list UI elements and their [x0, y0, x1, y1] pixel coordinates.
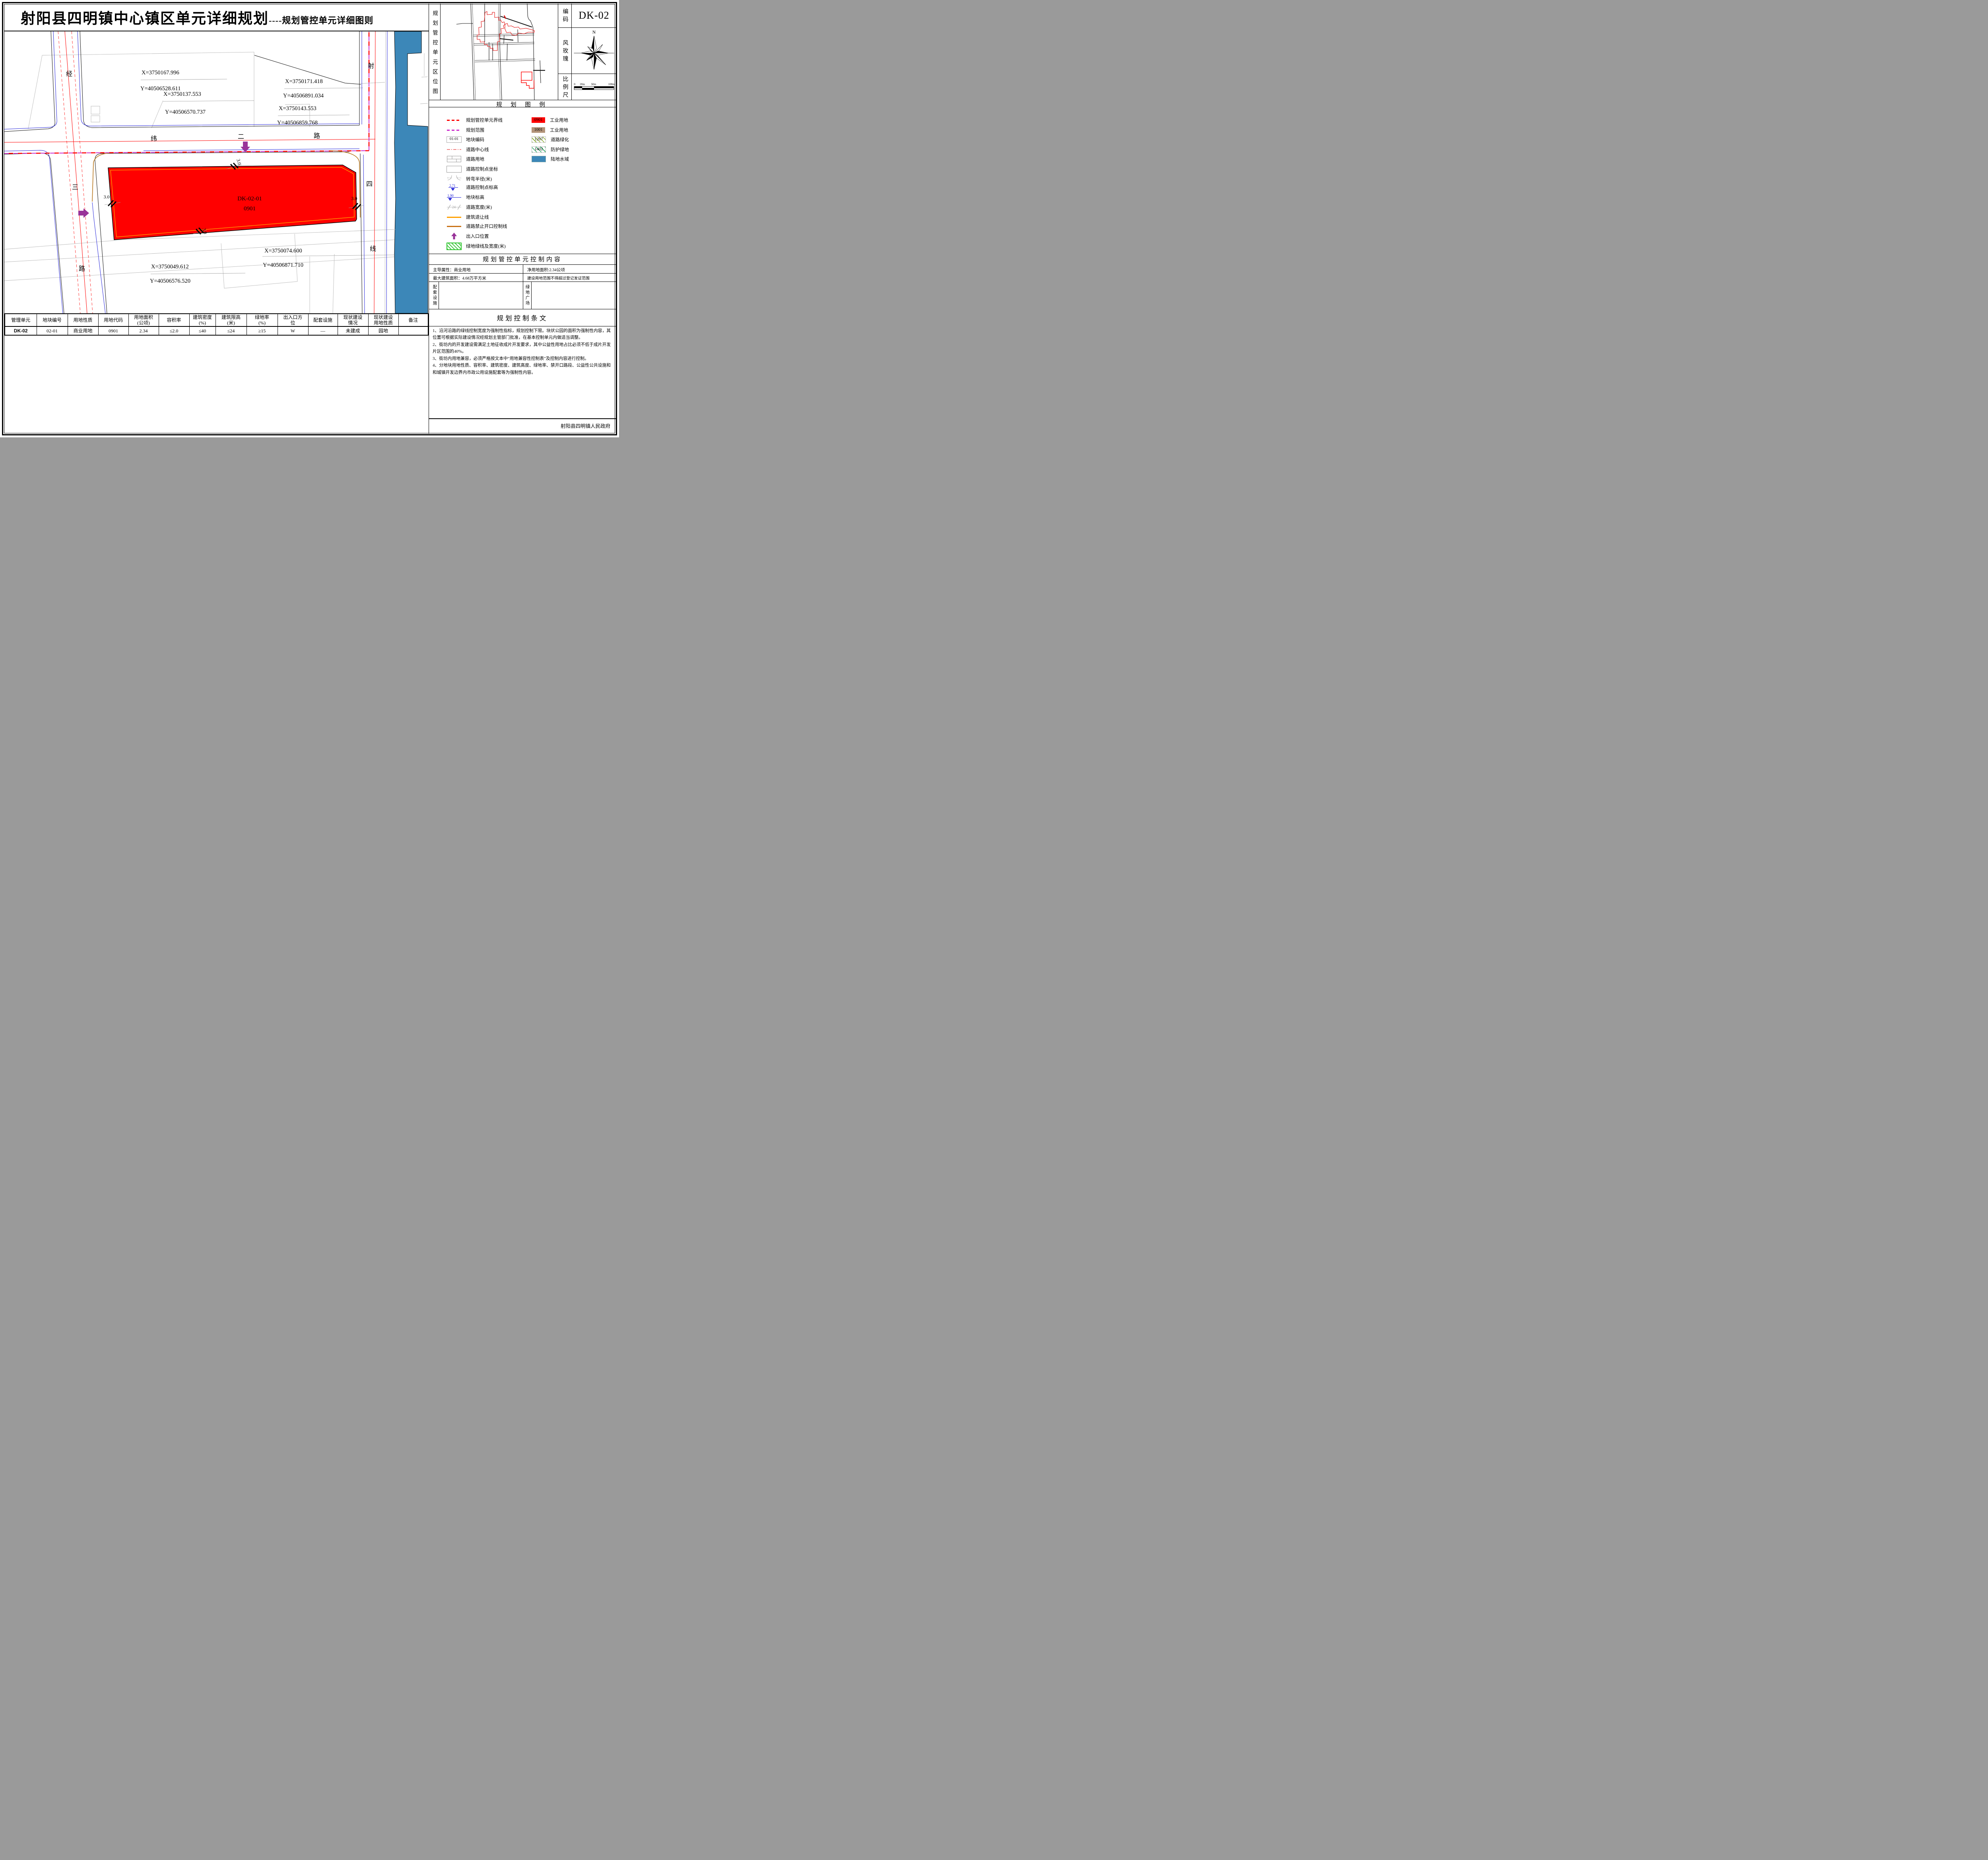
road-wei-char2: 二: [238, 134, 244, 140]
provisions-title: 规划控制条文: [429, 313, 616, 322]
legend-item: 01-01 地块编码: [447, 136, 484, 144]
plot-code-icon: 01-01: [447, 136, 462, 143]
legend-item: 绿地绿线及宽度(米): [447, 242, 506, 250]
wind-rose-icon: N: [572, 29, 616, 73]
coord-3-x: X=3750171.418: [285, 78, 323, 85]
entrance-arrow-west: [78, 208, 89, 218]
coord-4-x: X=3750143.553: [279, 105, 316, 112]
col-header: 地块编号: [37, 314, 68, 326]
cell-height: ≤24: [215, 326, 247, 335]
parcel-use-label: 0901: [244, 206, 256, 212]
scale-tick-100: 100m: [608, 83, 615, 86]
coord-2-x: X=3750137.553: [163, 91, 201, 97]
col-header: 出入口方 位: [278, 314, 308, 326]
entrance-icon: [447, 233, 462, 240]
road-she-char2: 四: [366, 181, 373, 188]
legend-item: 道路中心线: [447, 146, 489, 153]
legend-item: 道路控制点坐标: [447, 165, 498, 173]
col-header: 建筑限高 (米): [215, 314, 247, 326]
coord-4-y: Y=40506859.768: [277, 120, 318, 126]
plot-elevation-icon: 1.90: [447, 194, 462, 201]
cell-status-use: 园地: [368, 326, 398, 335]
location-town-boundary: [477, 12, 534, 50]
cell-plot-no: 02-01: [37, 326, 68, 335]
col-header: 现状建设 用地性质: [368, 314, 398, 326]
right-panel: 规划管控单元区位图: [429, 4, 616, 434]
green-plaza-label: 绿地广场: [523, 282, 532, 309]
cell-far: ≤2.0: [159, 326, 189, 335]
page-title: 射阳县四明镇中心镇区单元详细规划----规划管控单元详细图则: [21, 6, 373, 28]
cell-status: 未建成: [338, 326, 368, 335]
wind-rose-row: 风玫瑰 N: [558, 28, 616, 74]
water-body: [394, 31, 428, 313]
north-label: N: [592, 29, 596, 35]
cell-green: ≥15: [247, 326, 278, 335]
plan-sheet: 射阳县四明镇中心镇区单元详细规划----规划管控单元详细图则: [0, 0, 619, 437]
location-roads: [456, 4, 545, 100]
col-header: 用地代码: [98, 314, 128, 326]
legend-item: 0901 工业用地: [532, 116, 568, 124]
legend-item: R=15 R=15 转弯半径(米): [447, 175, 492, 183]
scale-tick-20: 20m: [580, 83, 585, 86]
legend-item: 建筑退让线: [447, 213, 489, 221]
col-header: 备注: [398, 314, 428, 326]
table-header-row: 管理单元 地块编号 用地性质 用地代码 用地面积 (公顷) 容积率 建筑密度 (…: [5, 314, 428, 326]
info-column: 编码 DK-02 风玫瑰 N: [558, 4, 616, 100]
col-header: 管理单元: [5, 314, 37, 326]
cell-density: ≤40: [189, 326, 215, 335]
dim-bottom: 3.0: [201, 227, 208, 235]
road-jing-char1: 经: [66, 70, 72, 78]
legend-item: 道路禁止开口控制线: [447, 222, 507, 230]
cell-use: 商业用地: [68, 326, 98, 335]
code-value: DK-02: [572, 4, 616, 27]
legend-item: 规划范围: [447, 126, 484, 134]
provisions-text: 1、沿河沿路的绿线控制宽度为强制性指标，规划控制下限。块状公园的面积为强制性内容…: [433, 328, 613, 376]
road-elevation-icon: 2.71: [447, 184, 462, 191]
svg-text:2.71: 2.71: [449, 184, 456, 188]
title-sub: ----规划管控单元详细图则: [269, 16, 373, 25]
land-scope-note: 建设用地范围不得超过登记发证范围: [527, 275, 590, 281]
cell-unit: DK-02: [5, 326, 37, 335]
svg-text:24: 24: [452, 205, 456, 209]
provision-item: 3、街坊内用地兼容，必须严格按文本中“用地兼容性控制表”及控制内容进行控制。: [433, 355, 613, 362]
legend-item: 道路用地: [447, 155, 484, 163]
col-header: 用地面积 (公顷): [128, 314, 159, 326]
road-jing-char3: 路: [79, 265, 85, 272]
scale-tick-50: 50m: [591, 83, 596, 86]
col-header: 用地性质: [68, 314, 98, 326]
setback-line-icon: [447, 217, 462, 218]
coord-5-x: X=3750074.600: [264, 248, 302, 254]
road-land-icon: [447, 156, 462, 162]
turn-radius-icon: R=15 R=15: [447, 175, 462, 183]
use-1001-swatch: 1001: [532, 127, 545, 133]
legend-item: 陆地水域: [532, 155, 569, 163]
location-map: [441, 4, 558, 100]
scale-row: 比例尺 0 20m 50m 100m: [558, 74, 616, 100]
col-header: 容积率: [159, 314, 189, 326]
control-content-title: 规划管控单元控制内容: [429, 255, 616, 263]
col-header: 绿地率 (%): [247, 314, 278, 326]
road-wei-char1: 纬: [151, 135, 157, 142]
svg-text:1.90: 1.90: [447, 194, 454, 198]
legend-item: 1402 防护绿地: [532, 146, 569, 153]
entrance-arrow-north: [241, 142, 250, 152]
use-1207-swatch: 1207: [532, 136, 546, 143]
legend-item: 出入口位置: [447, 232, 489, 240]
road-control-point-icon: [447, 166, 462, 173]
facility-label: 配套设施: [431, 282, 439, 309]
coord-3-y: Y=40506891.034: [283, 93, 324, 99]
parcel-code-label: DK-02-01: [237, 196, 262, 202]
provision-item: 1、沿河沿路的绿线控制宽度为强制性指标，规划控制下限。块状公园的面积为强制性内容…: [433, 328, 613, 342]
legend-item: 24 道路宽度(米): [447, 203, 492, 211]
dim-left: 3.0: [104, 194, 110, 200]
road-she-char3: 线: [370, 245, 376, 252]
code-row: 编码 DK-02: [558, 4, 616, 28]
road-jing-char2: 三: [72, 184, 78, 191]
net-area: 净用地面积:2.34公顷: [527, 267, 565, 273]
location-map-title: 规划管控单元区位图: [429, 4, 441, 100]
issuing-authority: 射阳县四明镇人民政府: [429, 418, 610, 434]
legend-item: 规划管控单元界线: [447, 116, 503, 124]
scale-label: 比例尺: [558, 74, 572, 100]
cell-entrance: W: [278, 326, 308, 335]
use-1402-swatch: 1402: [532, 146, 546, 153]
legend-item: 1001 工业用地: [532, 126, 568, 134]
green-line-icon: [447, 243, 462, 250]
wind-rose-petals: [581, 36, 608, 70]
svg-text:R=15: R=15: [447, 177, 452, 179]
dim-top: 3.0: [235, 158, 242, 165]
svg-text:R=15: R=15: [457, 177, 461, 179]
cell-use-code: 0901: [98, 326, 128, 335]
road-centerline-icon: [447, 149, 462, 150]
coord-6-x: X=3750049.612: [151, 264, 189, 270]
title-main: 射阳县四明镇中心镇区单元详细规划: [21, 11, 269, 27]
dominant-use: 主导属性：商业用地: [433, 267, 471, 273]
legend-item: 2.71 道路控制点标高: [447, 183, 498, 191]
parcel-dk-02-01: [108, 165, 357, 240]
plot-index-table: 管理单元 地块编号 用地性质 用地代码 用地面积 (公顷) 容积率 建筑密度 (…: [4, 313, 429, 336]
coord-6-y: Y=40506576.520: [150, 278, 190, 284]
code-label: 编码: [558, 4, 572, 27]
unit-boundary-icon: [447, 120, 462, 121]
road-width-icon: 24: [447, 204, 462, 211]
max-building-area: 最大建筑面积：4.68万平方米: [433, 275, 486, 281]
provision-item: 2、街坊内的开发建设需满足土地征收成片开发要求，其中公益性用地占比必须不低于成片…: [433, 342, 613, 355]
water-swatch: [532, 156, 546, 162]
legend-item: 1.90 地块标高: [447, 193, 484, 201]
coord-1-x: X=3750167.996: [142, 70, 179, 76]
provision-item: 4、分地块用地性质、容积率、建筑密度、建筑高度、绿地率、禁开口路段、公益性公共设…: [433, 362, 613, 376]
dim-right: 3.0: [351, 196, 357, 201]
use-0901-swatch: 0901: [532, 117, 545, 123]
coord-2-y: Y=40506570.737: [165, 109, 206, 115]
road-wei-char3: 路: [314, 132, 320, 140]
location-unit-outline: [521, 72, 534, 88]
road-she-char1: 射: [368, 62, 374, 70]
cell-area: 2.34: [128, 326, 159, 335]
coord-5-y: Y=40506871.710: [263, 262, 303, 268]
cell-remark: [398, 326, 428, 335]
plan-scope-icon: [447, 130, 462, 131]
table-data-row: DK-02 02-01 商业用地 0901 2.34 ≤2.0 ≤40 ≤24 …: [5, 326, 428, 335]
cell-facility: —: [308, 326, 338, 335]
col-header: 建筑密度 (%): [189, 314, 215, 326]
scale-tick-0: 0: [574, 83, 575, 86]
legend-item: 1207 道路绿化: [532, 136, 569, 144]
wind-rose-label: 风玫瑰: [558, 28, 572, 74]
col-header: 现状建设 情况: [338, 314, 368, 326]
scale-bar-icon: 0 20m 50m 100m: [573, 81, 615, 93]
no-open-line-icon: [447, 226, 462, 227]
plan-map: 3.0 3.0 3.0 3.0 经 三 路 纬 二 路 射 四 线 DK-02-…: [4, 31, 429, 313]
col-header: 配套设施: [308, 314, 338, 326]
